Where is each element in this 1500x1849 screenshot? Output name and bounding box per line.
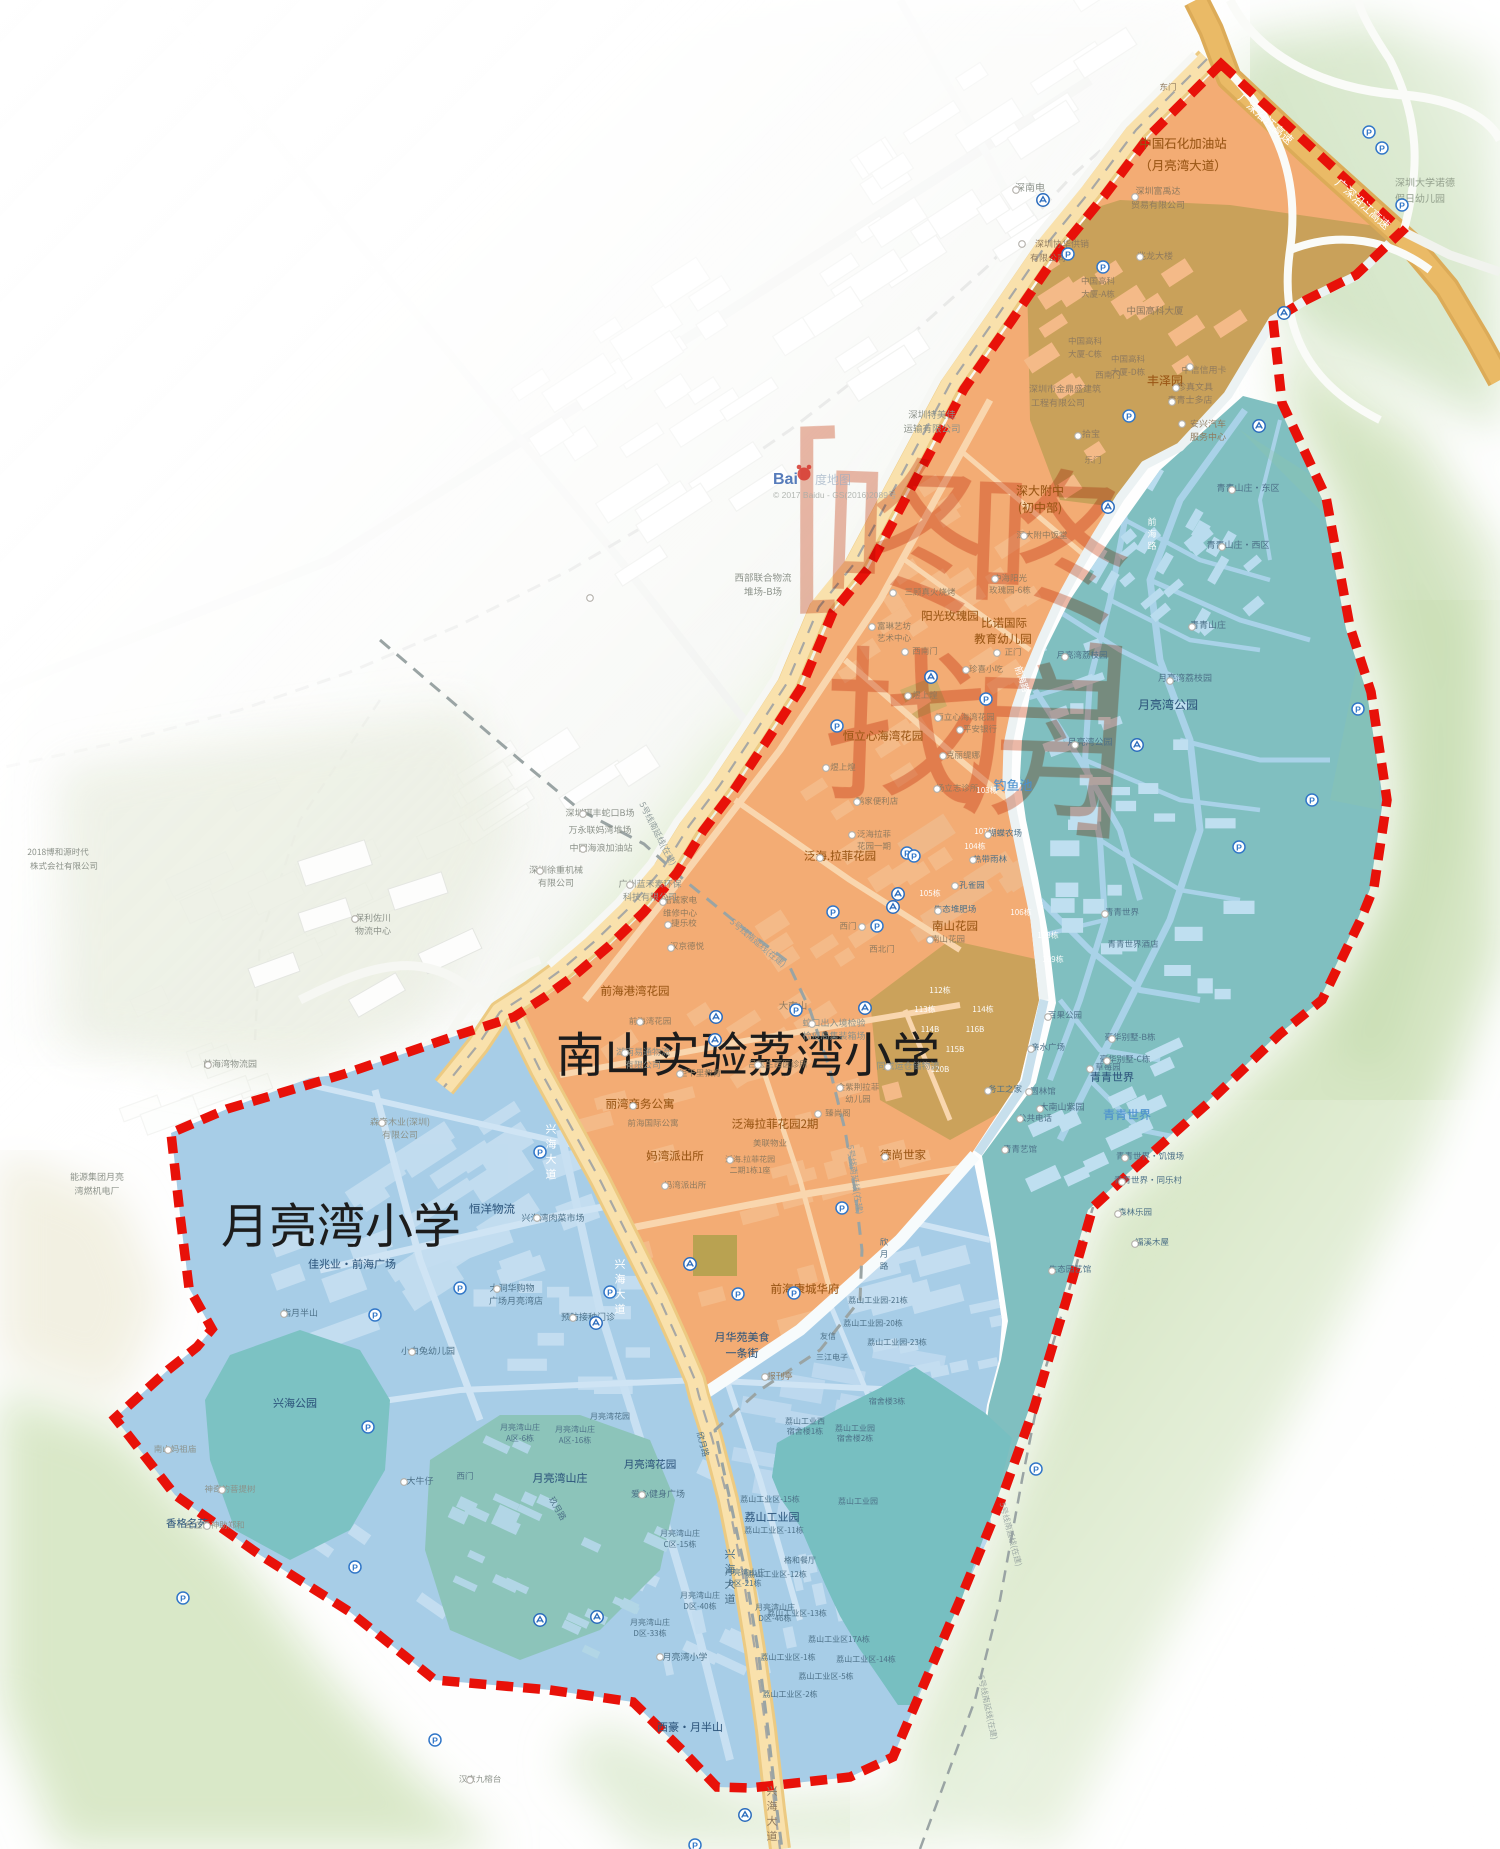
svg-text:P: P xyxy=(372,1310,378,1320)
svg-text:P: P xyxy=(1126,411,1132,421)
svg-text:P: P xyxy=(1065,249,1071,259)
svg-text:P: P xyxy=(1366,127,1372,137)
svg-text:P: P xyxy=(793,1005,799,1015)
svg-text:P: P xyxy=(692,1840,698,1849)
svg-text:P: P xyxy=(791,1288,797,1298)
svg-text:P: P xyxy=(1100,262,1106,272)
svg-text:P: P xyxy=(457,1283,463,1293)
svg-text:P: P xyxy=(735,1289,741,1299)
svg-text:P: P xyxy=(352,1562,358,1572)
svg-text:P: P xyxy=(983,694,989,704)
svg-text:P: P xyxy=(180,1593,186,1603)
svg-text:P: P xyxy=(1236,842,1242,852)
svg-text:P: P xyxy=(537,1147,543,1157)
svg-text:P: P xyxy=(607,1287,613,1297)
svg-text:P: P xyxy=(874,921,880,931)
svg-text:P: P xyxy=(1399,200,1405,210)
svg-text:© 2017 Baidu - GS(2016)2089号: © 2017 Baidu - GS(2016)2089号 xyxy=(773,490,896,500)
svg-text:P: P xyxy=(834,721,840,731)
svg-text:P: P xyxy=(1355,704,1361,714)
svg-text:Bai: Bai xyxy=(773,471,798,488)
svg-text:P: P xyxy=(1033,1464,1039,1474)
svg-text:P: P xyxy=(1379,143,1385,153)
svg-text:P: P xyxy=(432,1735,438,1745)
svg-text:P: P xyxy=(911,851,917,861)
svg-text:P: P xyxy=(1309,795,1315,805)
svg-text:度地图: 度地图 xyxy=(815,472,851,487)
svg-text:P: P xyxy=(365,1422,371,1432)
svg-text:P: P xyxy=(830,907,836,917)
svg-text:P: P xyxy=(839,1203,845,1213)
